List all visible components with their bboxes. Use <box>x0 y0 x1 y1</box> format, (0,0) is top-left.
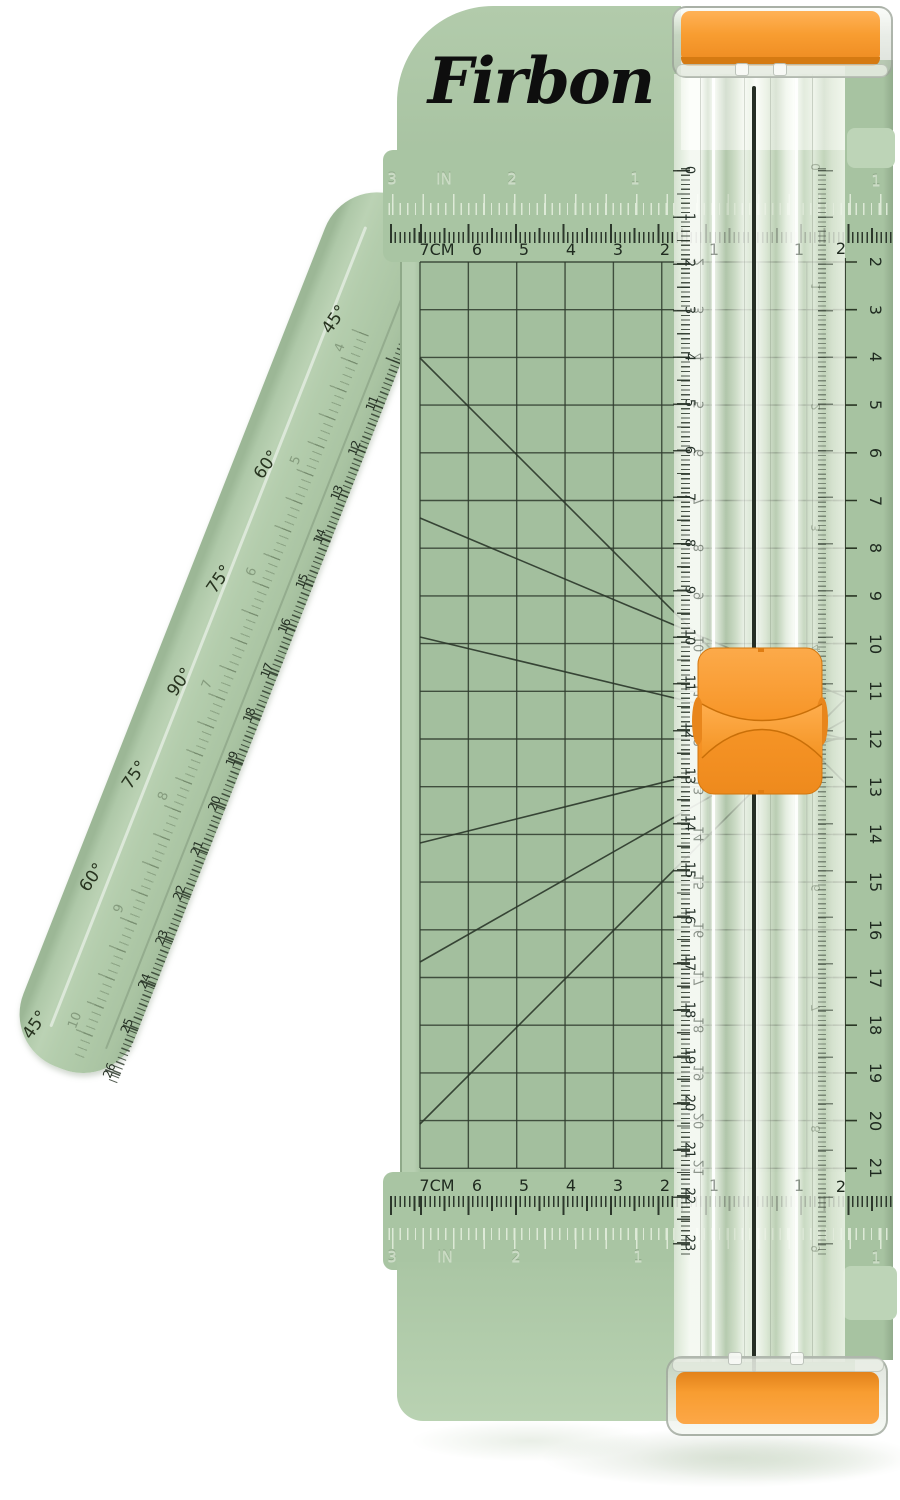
under-rail-number: 5 <box>694 401 707 409</box>
top-inch-label: 1 <box>630 172 640 187</box>
top-inch-right-label: 1 <box>871 174 881 189</box>
right-scale-number: 21 <box>867 1158 883 1178</box>
bottom-cm-label: 5 <box>519 1178 529 1194</box>
rail-scale-number: 22 <box>683 1188 696 1205</box>
under-rail-number: 20 <box>694 1112 707 1129</box>
right-scale-number: 12 <box>867 729 883 749</box>
bottom-cm-right-label: 2 <box>836 1179 846 1195</box>
bottom-inch-right-label: 1 <box>871 1251 881 1266</box>
bottom-cm-label: 2 <box>660 1178 670 1194</box>
top-cm-label: 5 <box>519 242 529 258</box>
right-scale-number: 5 <box>867 400 883 410</box>
under-rail-number: 7 <box>694 496 707 504</box>
right-scale-number: 7 <box>867 495 883 505</box>
top-cap-orange <box>681 11 880 63</box>
right-scale-number: 13 <box>867 777 883 797</box>
rail-scale-number: 18 <box>683 1001 696 1018</box>
right-scale-number: 6 <box>867 448 883 458</box>
right-scale-number: 20 <box>867 1110 883 1130</box>
right-scale-number: 10 <box>867 633 883 653</box>
right-scale-number: 2 <box>867 257 883 267</box>
bottom-cm-label: 3 <box>613 1178 623 1194</box>
top-cm-label: 7CM <box>419 242 454 258</box>
right-scale-number: 3 <box>867 305 883 315</box>
right-scale-number: 4 <box>867 352 883 362</box>
blade-slider <box>694 640 830 800</box>
right-scale-number: 14 <box>867 824 883 844</box>
under-rail-number: 16 <box>694 922 707 939</box>
right-scale-number: 16 <box>867 920 883 940</box>
bottom-inch-label: IN <box>437 1250 453 1265</box>
top-inch-label: 3 <box>387 172 397 187</box>
top-cm-right-label: 2 <box>836 241 846 257</box>
rail-scale-number: 20 <box>683 1095 696 1112</box>
rail-scale-number: 0 <box>683 166 696 174</box>
rail-inch-number: 7 <box>810 1005 822 1013</box>
right-scale-number: 11 <box>867 681 883 701</box>
under-rail-number: 18 <box>694 1017 707 1034</box>
rail-scale-number: 23 <box>683 1235 696 1252</box>
bottom-cm-label: 6 <box>472 1178 482 1194</box>
under-rail-number: 21 <box>694 1160 707 1177</box>
top-cap-notch <box>735 63 749 76</box>
rail-inch-number: 2 <box>810 404 822 412</box>
right-scale-number: 19 <box>867 1063 883 1083</box>
bottom-inch-label: 1 <box>633 1250 643 1265</box>
rail-inch-number: 0 <box>810 163 822 171</box>
rail-inch-number: 8 <box>810 1125 822 1133</box>
top-cm-faint-label: 1 <box>794 242 804 258</box>
right-scale-number: 17 <box>867 967 883 987</box>
rail-scale-number: 19 <box>683 1048 696 1065</box>
under-rail-number: 6 <box>694 449 707 457</box>
under-rail-number: 19 <box>694 1065 707 1082</box>
right-scale-number: 18 <box>867 1015 883 1035</box>
paper-trimmer-product-photo: 45°60°75°90°75°60°45°4567891011121314151… <box>0 0 900 1500</box>
rail-scale-number: 1 <box>683 213 696 221</box>
bottom-cap-orange <box>676 1372 879 1424</box>
rail-inch-number: 3 <box>810 524 822 532</box>
bottom-cm-faint-label: 1 <box>794 1178 804 1194</box>
rail-inch-number: 6 <box>810 884 822 892</box>
top-inch-label: IN <box>436 172 452 187</box>
under-rail-number: 4 <box>694 353 707 361</box>
under-rail-number: 14 <box>694 826 707 843</box>
under-rail-number: 3 <box>694 306 707 314</box>
rail-inch-number: 9 <box>810 1245 822 1253</box>
bottom-cap-notch <box>728 1352 742 1365</box>
under-rail-number: 2 <box>694 258 707 266</box>
bottom-cm-faint-label: 1 <box>709 1178 719 1194</box>
top-cm-label: 2 <box>660 242 670 258</box>
bottom-cm-label: 4 <box>566 1178 576 1194</box>
under-rail-number: 9 <box>694 592 707 600</box>
top-cm-label: 3 <box>613 242 623 258</box>
under-rail-number: 17 <box>694 969 707 986</box>
top-inch-label: 2 <box>507 172 517 187</box>
rail-inch-number: 1 <box>810 283 822 291</box>
right-scale-number: 15 <box>867 872 883 892</box>
rail-scale-number: 21 <box>683 1141 696 1158</box>
under-rail-number: 8 <box>694 544 707 552</box>
top-cm-label: 4 <box>566 242 576 258</box>
bottom-cap-base <box>672 1358 884 1372</box>
top-cm-label: 6 <box>472 242 482 258</box>
bottom-cap-notch <box>790 1352 804 1365</box>
under-rail-number: 15 <box>694 874 707 891</box>
bottom-inch-label: 3 <box>387 1250 397 1265</box>
right-scale-number: 8 <box>867 543 883 553</box>
right-scale-number: 9 <box>867 591 883 601</box>
bottom-inch-label: 2 <box>511 1250 521 1265</box>
top-cm-faint-label: 1 <box>709 242 719 258</box>
top-cap-notch <box>773 63 787 76</box>
bottom-cm-label: 7CM <box>419 1178 454 1194</box>
